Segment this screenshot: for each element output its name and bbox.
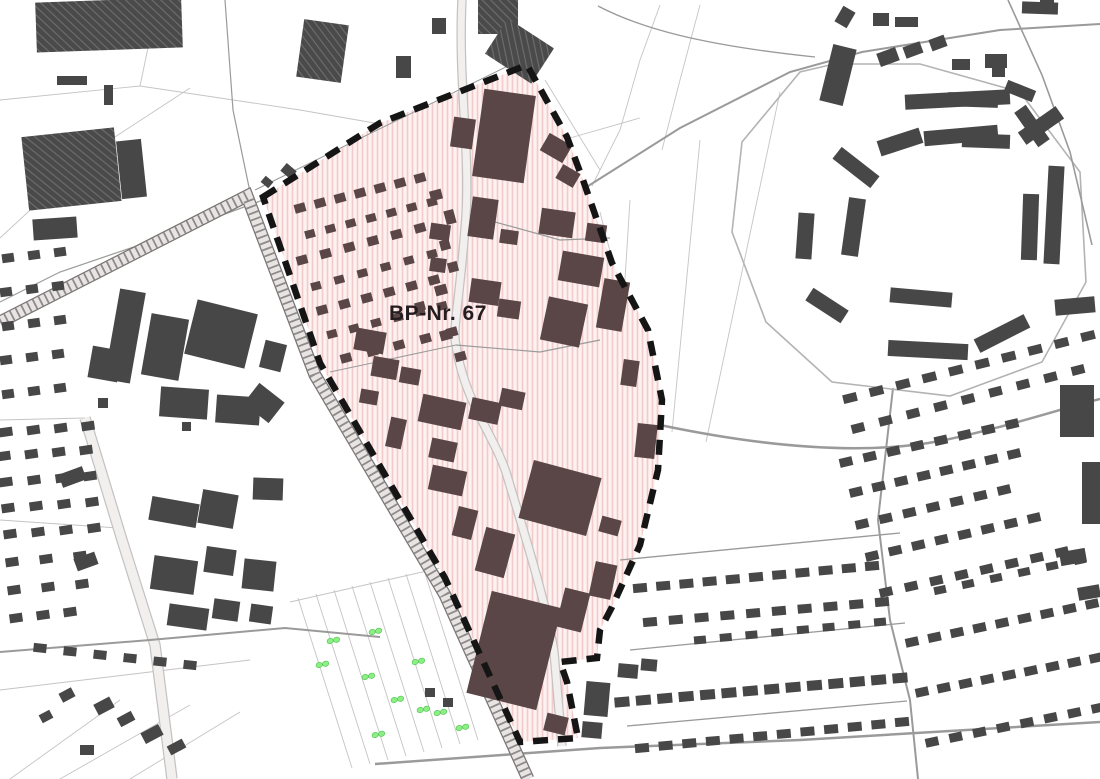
building <box>59 525 73 536</box>
building <box>57 76 87 85</box>
building <box>425 688 435 697</box>
building <box>54 423 68 434</box>
building <box>80 745 94 755</box>
building <box>849 599 864 609</box>
building <box>467 196 498 239</box>
building <box>249 604 273 625</box>
building <box>432 18 446 34</box>
building <box>895 717 910 727</box>
building <box>871 674 887 685</box>
building <box>31 527 45 538</box>
building <box>63 607 77 618</box>
building <box>79 445 93 456</box>
building <box>795 212 814 259</box>
building <box>5 557 19 568</box>
building <box>429 257 447 273</box>
building <box>702 576 717 586</box>
building <box>0 427 13 438</box>
building <box>635 743 650 753</box>
building <box>871 719 886 729</box>
building <box>772 570 787 580</box>
building <box>764 683 780 694</box>
building <box>1021 194 1039 261</box>
building <box>719 633 732 642</box>
building <box>785 682 801 693</box>
building <box>32 216 77 240</box>
building <box>818 565 833 575</box>
building <box>63 646 77 656</box>
building <box>657 693 673 704</box>
building <box>197 489 238 529</box>
building <box>36 610 50 621</box>
building <box>873 13 889 26</box>
building <box>429 223 451 242</box>
building <box>253 477 284 500</box>
building <box>841 563 856 573</box>
building <box>27 475 41 486</box>
building <box>24 449 38 460</box>
building <box>658 741 673 751</box>
building <box>51 281 64 292</box>
building <box>742 685 758 696</box>
building <box>27 318 40 329</box>
building <box>952 59 970 70</box>
building <box>694 612 709 622</box>
building <box>1 321 14 332</box>
building <box>7 585 21 596</box>
building <box>3 529 17 540</box>
building <box>87 346 122 383</box>
building <box>123 653 137 663</box>
building <box>87 523 101 534</box>
building <box>634 423 657 459</box>
building <box>98 398 108 408</box>
building <box>720 610 735 620</box>
building <box>1082 462 1100 524</box>
building <box>874 617 887 626</box>
building <box>865 561 880 571</box>
building <box>52 447 66 458</box>
building <box>1 253 14 264</box>
building <box>797 604 812 614</box>
building <box>0 477 13 488</box>
building <box>745 630 758 639</box>
building <box>73 551 87 562</box>
building <box>450 117 476 150</box>
building <box>823 601 838 611</box>
building <box>443 698 453 707</box>
building <box>182 422 191 431</box>
building <box>1040 0 1054 10</box>
building <box>700 689 716 700</box>
map-root: BP-Nr. 67 <box>0 0 1100 779</box>
building <box>93 650 107 660</box>
building <box>26 425 40 436</box>
building <box>9 613 23 624</box>
building <box>800 726 815 736</box>
building <box>771 628 784 637</box>
building <box>614 696 630 707</box>
building <box>847 722 862 732</box>
building <box>1 389 14 400</box>
building <box>643 617 658 627</box>
building <box>150 555 198 595</box>
building <box>25 284 38 295</box>
building <box>985 54 1007 68</box>
building <box>53 383 66 394</box>
building <box>104 85 113 105</box>
building <box>183 660 197 670</box>
building <box>81 421 95 432</box>
building <box>53 315 66 326</box>
building <box>29 501 43 512</box>
building <box>538 208 575 238</box>
building <box>497 299 521 320</box>
building <box>499 229 519 245</box>
building <box>203 546 236 576</box>
plan-area-label: BP-Nr. 67 <box>389 302 487 325</box>
building <box>33 643 47 653</box>
building <box>242 558 277 591</box>
building <box>849 676 865 687</box>
building <box>668 615 683 625</box>
building <box>57 499 71 510</box>
building <box>848 620 861 629</box>
building <box>635 695 651 706</box>
building <box>962 133 1010 149</box>
building <box>1 503 15 514</box>
building <box>679 579 694 589</box>
building <box>641 658 658 671</box>
building <box>875 597 890 607</box>
building <box>75 579 89 590</box>
building <box>581 721 602 739</box>
building <box>212 598 241 621</box>
map-canvas: BP-Nr. 67 <box>0 0 1100 779</box>
building <box>822 623 835 632</box>
building <box>296 19 349 83</box>
building <box>706 736 721 746</box>
building <box>725 574 740 584</box>
building <box>828 678 844 689</box>
building <box>795 568 810 578</box>
building <box>948 92 998 108</box>
building <box>153 656 167 666</box>
building <box>746 608 761 618</box>
building <box>85 497 99 508</box>
building <box>51 349 64 360</box>
building <box>749 572 764 582</box>
building <box>21 127 121 210</box>
building <box>83 471 97 482</box>
building <box>678 691 694 702</box>
building <box>617 663 638 679</box>
building <box>159 386 209 419</box>
building <box>1060 385 1094 437</box>
building <box>25 352 38 363</box>
building <box>399 366 421 385</box>
building <box>35 0 183 53</box>
building <box>0 287 13 298</box>
building <box>41 582 55 593</box>
building <box>55 473 69 484</box>
building <box>633 583 648 593</box>
building <box>682 738 697 748</box>
building <box>53 247 66 258</box>
building <box>772 606 787 616</box>
building <box>797 625 810 634</box>
building <box>0 451 11 462</box>
building <box>729 733 744 743</box>
building <box>584 681 611 717</box>
building <box>895 17 918 27</box>
building <box>892 672 908 683</box>
building <box>396 56 411 78</box>
building <box>694 635 707 644</box>
building <box>776 729 791 739</box>
building <box>27 386 40 397</box>
building <box>824 724 839 734</box>
building <box>753 731 768 741</box>
building <box>992 67 1005 77</box>
building <box>27 250 40 261</box>
building <box>0 355 13 366</box>
building <box>807 680 823 691</box>
building <box>721 687 737 698</box>
building <box>656 581 671 591</box>
building <box>39 554 53 565</box>
